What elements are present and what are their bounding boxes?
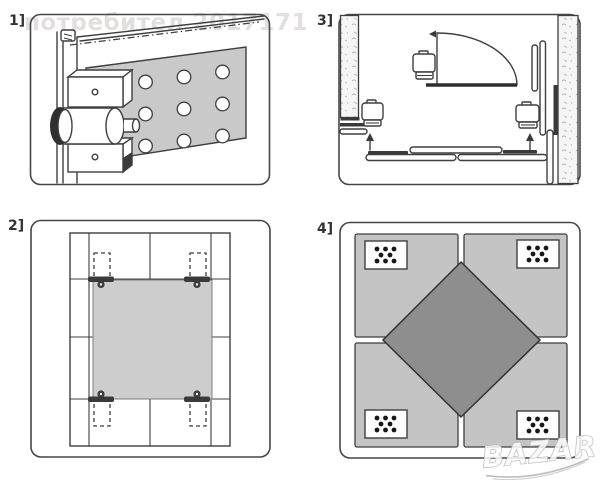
right-wall (554, 16, 579, 184)
bazar-logo-text: BAZAR (480, 429, 598, 475)
instruction-sheet: потребител 2017171 1] 3] 2] 4] (0, 0, 601, 480)
lock-device-on-door (413, 51, 435, 79)
lock-device-left (362, 100, 383, 126)
vent-plate-bottom-left (365, 410, 407, 438)
panel-3-drawing (336, 8, 586, 186)
up-arrow-left (366, 133, 374, 150)
floor-track-slats (366, 147, 547, 161)
panel-3-label: 3] (317, 13, 333, 29)
door-top-perspective-lines (70, 16, 264, 45)
bazar-logo-watermark: BAZAR (478, 424, 601, 480)
vent-plate-top-right (517, 240, 559, 268)
panel-4-label: 4] (317, 221, 333, 237)
cylinder-pin (124, 119, 140, 132)
top-guide-clip (61, 30, 75, 41)
lock-bracket-top (68, 70, 132, 107)
panel-2-label: 2] (8, 218, 24, 234)
door-swing (426, 31, 517, 86)
panel-1-label: 1] (9, 13, 25, 29)
panel-2-drawing (26, 212, 276, 462)
lock-device-right (516, 102, 539, 128)
panel-1-drawing (28, 8, 274, 186)
vent-plate-top-left (365, 241, 407, 269)
mounting-plate (93, 280, 212, 399)
up-arrow-right (526, 133, 534, 150)
